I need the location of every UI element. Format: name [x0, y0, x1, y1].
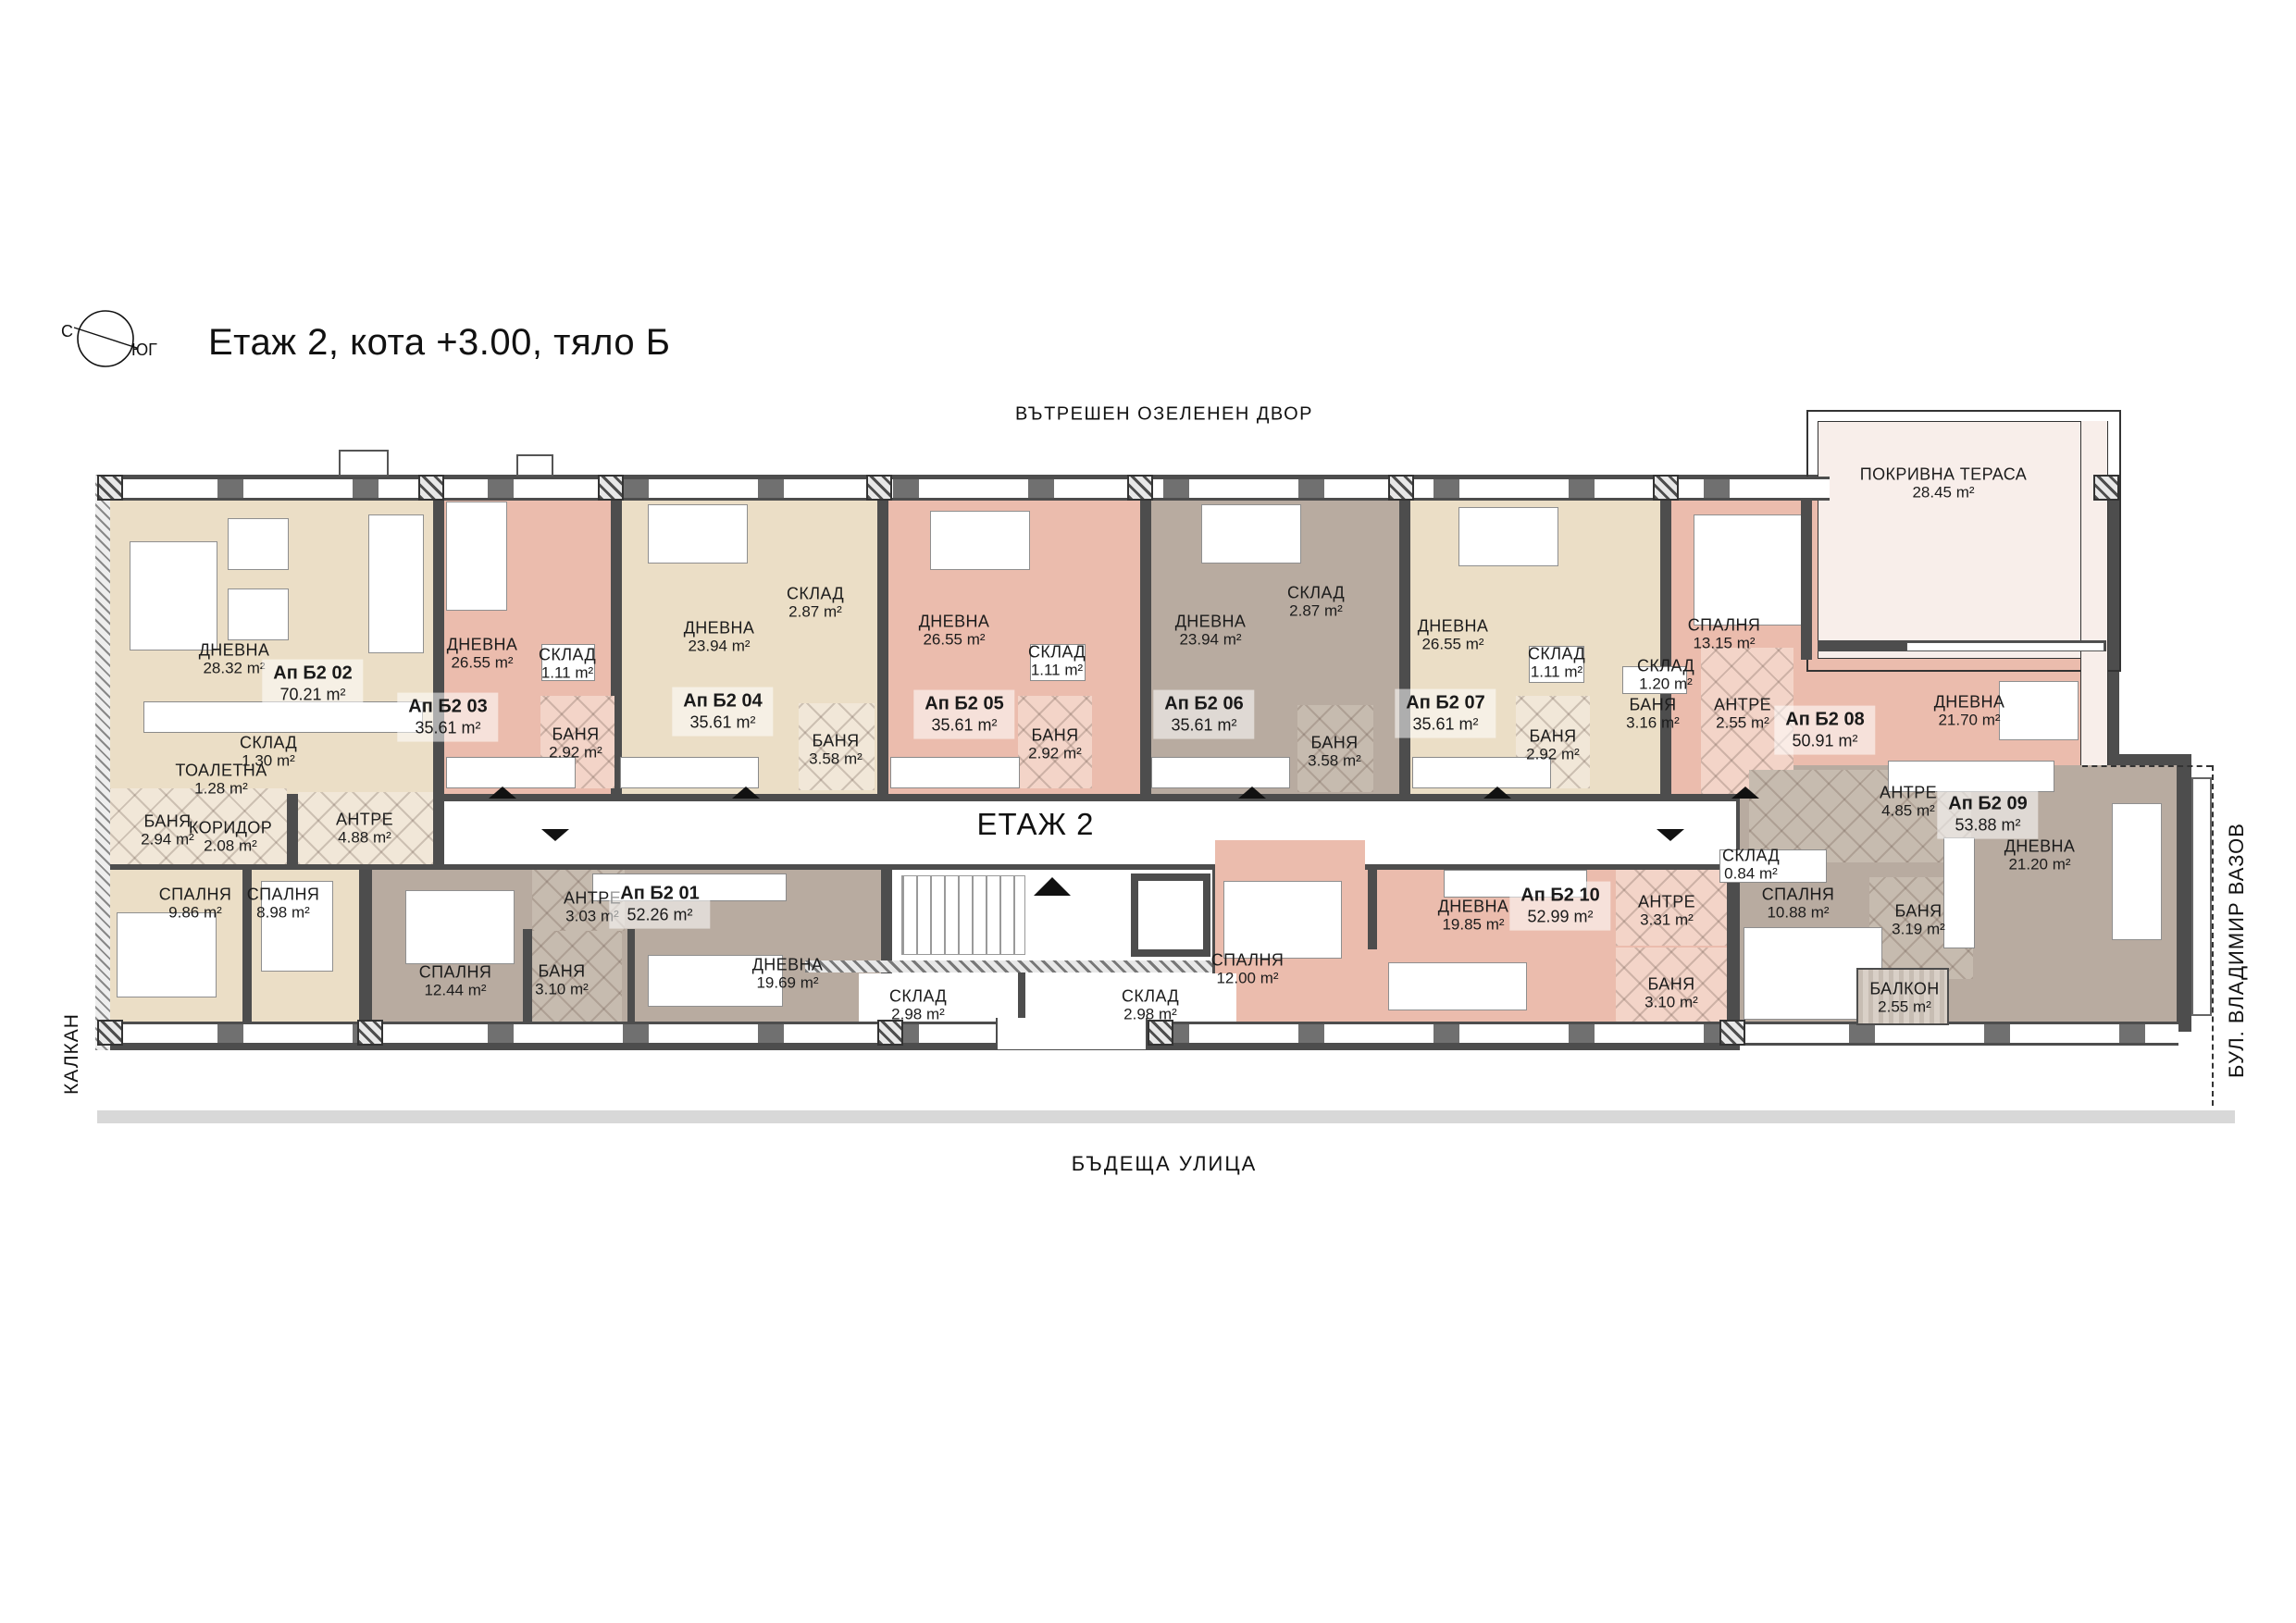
- room-area: 3.19 m²: [1892, 921, 1945, 938]
- armchair: [228, 588, 289, 640]
- room-label: СПАЛНЯ12.00 m²: [1211, 950, 1285, 986]
- room-name: ДНЕВНА: [684, 618, 755, 637]
- stair-landing-hatch: [805, 960, 1212, 973]
- room-name: СКЛАД: [787, 584, 844, 602]
- apartment-id: Ап Б2 09: [1948, 794, 2027, 816]
- wall-pier: [1653, 475, 1679, 501]
- room-area: 2.08 m²: [189, 837, 272, 855]
- apartment-area: 35.61 m²: [1406, 714, 1484, 734]
- room-label: АНТРЕ4.85 m²: [1880, 783, 1937, 819]
- kitchen-counter: [890, 757, 1020, 788]
- wall-pier: [1127, 475, 1153, 501]
- room-label: ТОАЛЕТНА1.28 m²: [175, 761, 267, 797]
- room-label: БАНЯ2.92 m²: [1028, 725, 1082, 762]
- sofa: [1388, 962, 1527, 1010]
- apartment-badge: Ап Б2 0535.61 m²: [913, 690, 1014, 739]
- courtyard-label: ВЪТРЕШЕН ОЗЕЛЕНЕН ДВОР: [1015, 404, 1313, 426]
- room-area: 12.44 m²: [419, 982, 492, 999]
- room-area: 9.86 m²: [159, 904, 232, 922]
- room-label: ДНЕВНА19.69 m²: [752, 955, 824, 991]
- stair-treads: [901, 875, 1025, 955]
- apartment-area: 70.21 m²: [273, 685, 352, 704]
- property-line-dashed-top: [2082, 765, 2212, 767]
- room-name: АНТРЕ: [1638, 892, 1695, 911]
- room-area: 13.15 m²: [1688, 635, 1761, 652]
- roof-terrace: [1818, 421, 2108, 659]
- room-name: БАНЯ: [809, 731, 863, 750]
- room-area: 2.92 m²: [1526, 746, 1580, 763]
- entry-arrow: [489, 787, 516, 799]
- wall-pier: [866, 475, 892, 501]
- corridor-label: ЕТАЖ 2: [976, 807, 1094, 842]
- apartment-area: 35.61 m²: [925, 715, 1003, 735]
- room-label: СКЛАД1.11 m²: [1528, 644, 1585, 680]
- wall-pier: [2093, 475, 2119, 501]
- room-label: СПАЛНЯ13.15 m²: [1688, 615, 1761, 651]
- room-area: 3.58 m²: [1308, 752, 1361, 770]
- room-name: ДНЕВНА: [447, 635, 518, 653]
- room-area: 2.98 m²: [889, 1006, 947, 1023]
- room-area: 23.94 m²: [1175, 631, 1247, 649]
- terrace-south-window: [1906, 642, 2104, 651]
- apartment-id: Ап Б2 04: [683, 691, 762, 713]
- entry-arrow: [541, 829, 569, 841]
- room-label: СПАЛНЯ8.98 m²: [247, 885, 320, 921]
- room-area: 3.58 m²: [809, 750, 863, 768]
- apartment-id: Ап Б2 10: [1520, 886, 1599, 908]
- bed: [405, 890, 515, 964]
- wall-pier: [1388, 475, 1414, 501]
- room-name: АНТРЕ: [336, 810, 393, 828]
- apartment-badge: Ап Б2 0850.91 m²: [1774, 706, 1875, 755]
- apartment-id: Ап Б2 07: [1406, 693, 1484, 715]
- facade-box: [516, 454, 553, 477]
- room-name: БАНЯ: [1028, 725, 1082, 744]
- east-bay-window: [2191, 777, 2212, 1016]
- room-label: БАНЯ3.58 m²: [1308, 733, 1361, 769]
- room-area: 21.20 m²: [2004, 856, 2076, 873]
- room-area: 26.55 m²: [447, 654, 518, 672]
- room-area: 1.11 m²: [539, 664, 596, 682]
- partition: [1368, 870, 1377, 949]
- table: [1999, 681, 2079, 740]
- room-name: ДНЕВНА: [1934, 692, 2005, 711]
- room-label: СКЛАД1.11 m²: [1028, 642, 1086, 678]
- wall-pier: [1148, 1020, 1173, 1046]
- street-right-label: БУЛ. ВЛАДИМИР ВАЗОВ: [2225, 823, 2249, 1078]
- room-area: 1.11 m²: [1028, 662, 1086, 679]
- room-name: СКЛАД: [1722, 846, 1780, 864]
- room-label: БАНЯ3.16 m²: [1626, 695, 1680, 731]
- south-window-band-east: [1740, 1022, 2178, 1046]
- room-area: 0.84 m²: [1722, 865, 1780, 883]
- elevator: [1131, 873, 1210, 957]
- room-label: СКЛАД2.87 m²: [1287, 583, 1345, 619]
- room-name: СПАЛНЯ: [1762, 885, 1835, 903]
- apartment-area: 52.99 m²: [1520, 907, 1599, 926]
- entry-arrow: [1657, 829, 1684, 841]
- apartment-badge: Ап Б2 0735.61 m²: [1395, 689, 1496, 738]
- floor-plan-canvas: С ЮГ Етаж 2, кота +3.00, тяло Б ВЪТРЕШЕН…: [0, 0, 2296, 1623]
- room-label: ДНЕВНА21.70 m²: [1934, 692, 2005, 728]
- room-name: СКЛАД: [889, 986, 947, 1005]
- room-area: 3.16 m²: [1626, 714, 1680, 732]
- room-name: БАНЯ: [1892, 901, 1945, 920]
- room-label: ДНЕВНА26.55 m²: [447, 635, 518, 671]
- apartment-id: Ап Б2 02: [273, 663, 352, 686]
- bed: [1223, 881, 1342, 959]
- partition: [359, 870, 372, 1025]
- apartment-badge: Ап Б2 0270.21 m²: [262, 660, 363, 709]
- apartment-badge: Ап Б2 0635.61 m²: [1153, 690, 1254, 739]
- room-name: БАНЯ: [549, 725, 602, 743]
- north-window-band: [108, 477, 1830, 501]
- room-label: АНТРЕ4.88 m²: [336, 810, 393, 846]
- room-label: КОРИДОР2.08 m²: [189, 818, 272, 854]
- dining-table: [130, 541, 217, 650]
- room-name: ДНЕВНА: [1175, 612, 1247, 630]
- room-name: СКЛАД: [1528, 644, 1585, 663]
- room-name: ДНЕВНА: [1418, 616, 1489, 635]
- room-area: 4.85 m²: [1880, 802, 1937, 820]
- room-area: 26.55 m²: [919, 631, 990, 649]
- apartment-id: Ап Б2 01: [620, 884, 699, 906]
- bed: [1694, 514, 1803, 626]
- room-label: БАНЯ3.19 m²: [1892, 901, 1945, 937]
- room-area: 4.88 m²: [336, 829, 393, 847]
- room-area: 8.98 m²: [247, 904, 320, 922]
- room-label: СКЛАД1.11 m²: [539, 645, 596, 681]
- room-name: БАНЯ: [1308, 733, 1361, 751]
- room-label: АНТРЕ3.31 m²: [1638, 892, 1695, 928]
- room-area: 28.32 m²: [199, 660, 270, 677]
- room-label: СПАЛНЯ12.44 m²: [419, 962, 492, 998]
- room-name: ДНЕВНА: [919, 612, 990, 630]
- room-label: СКЛАД0.84 m²: [1722, 846, 1780, 882]
- facade-box: [339, 450, 389, 477]
- kitchen-counter: [620, 757, 759, 788]
- room-label: ДНЕВНА26.55 m²: [919, 612, 990, 648]
- kitchen-counter: [1943, 837, 1975, 948]
- apartment-area: 52.26 m²: [620, 905, 699, 924]
- room-area: 2.92 m²: [549, 744, 602, 762]
- apartment-badge: Ап Б2 0953.88 m²: [1937, 790, 2038, 839]
- room-name: БАНЯ: [1644, 974, 1698, 993]
- partition: [627, 929, 635, 1023]
- room-area: 2.55 m²: [1714, 714, 1771, 732]
- entry-arrow: [1483, 787, 1511, 799]
- room-label: БАНЯ2.92 m²: [549, 725, 602, 761]
- room-area: 10.88 m²: [1762, 904, 1835, 922]
- room-area: 1.11 m²: [1528, 663, 1585, 681]
- roof-terrace-strip: [2080, 421, 2108, 765]
- room-name: ПОКРИВНА ТЕРАСА: [1860, 465, 2027, 483]
- room-name: КОРИДОР: [189, 818, 272, 836]
- sofa: [368, 514, 424, 653]
- page-title: Етаж 2, кота +3.00, тяло Б: [208, 322, 671, 364]
- room-name: СКЛАД: [1287, 583, 1345, 601]
- apartment-area: 50.91 m²: [1785, 731, 1864, 750]
- room-label: АНТРЕ2.55 m²: [1714, 695, 1771, 731]
- room-name: СПАЛНЯ: [1688, 615, 1761, 634]
- room-area: 1.20 m²: [1637, 675, 1694, 693]
- room-label: СПАЛНЯ10.88 m²: [1762, 885, 1835, 921]
- room-name: СКЛАД: [539, 645, 596, 663]
- room-name: ТОАЛЕТНА: [175, 761, 267, 779]
- room-area: 28.45 m²: [1860, 484, 2027, 502]
- room-area: 3.10 m²: [535, 981, 589, 998]
- room-label: БАНЯ3.10 m²: [1644, 974, 1698, 1010]
- apartment-badge: Ап Б2 0335.61 m²: [397, 693, 498, 742]
- apartment-id: Ап Б2 08: [1785, 710, 1864, 732]
- room-name: СПАЛНЯ: [159, 885, 232, 903]
- apartment-area: 35.61 m²: [408, 718, 487, 737]
- apartment-id: Ап Б2 05: [925, 694, 1003, 716]
- room-area: 2.87 m²: [1287, 602, 1345, 620]
- entry-arrow: [1238, 787, 1266, 799]
- armchair: [228, 518, 289, 570]
- room-name: СКЛАД: [1637, 656, 1694, 675]
- kitchen-counter: [446, 757, 576, 788]
- room-label: БАНЯ2.94 m²: [141, 811, 194, 848]
- room-area: 2.55 m²: [1869, 998, 1939, 1016]
- apartment-badge: Ап Б2 0435.61 m²: [672, 688, 773, 737]
- room-area: 2.98 m²: [1122, 1006, 1179, 1023]
- room-label: ДНЕВНА28.32 m²: [199, 640, 270, 676]
- room-area: 3.10 m²: [1644, 994, 1698, 1011]
- room-name: СКЛАД: [1122, 986, 1179, 1005]
- room-name: ДНЕВНА: [1438, 897, 1509, 915]
- room-label: ПОКРИВНА ТЕРАСА28.45 m²: [1860, 465, 2027, 501]
- room-area: 23.94 m²: [684, 638, 755, 655]
- room-name: АНТРЕ: [1880, 783, 1937, 801]
- room-label: БАНЯ3.58 m²: [809, 731, 863, 767]
- party-wall-label: КАЛКАН: [61, 1013, 83, 1095]
- wall-pier: [357, 1020, 383, 1046]
- bed: [446, 502, 507, 611]
- apartment-badge: Ап Б2 1052.99 m²: [1509, 882, 1610, 931]
- room-name: БАНЯ: [141, 811, 194, 830]
- room-area: 2.94 m²: [141, 831, 194, 849]
- room-name: АНТРЕ: [1714, 695, 1771, 713]
- apartment-id: Ап Б2 03: [408, 697, 487, 719]
- room-name: СКЛАД: [240, 733, 297, 751]
- property-line-dashed: [2212, 765, 2214, 1106]
- room-name: ДНЕВНА: [752, 955, 824, 973]
- room-label: БАЛКОН2.55 m²: [1869, 979, 1939, 1015]
- room-label: СПАЛНЯ9.86 m²: [159, 885, 232, 921]
- room-name: ДНЕВНА: [2004, 836, 2076, 855]
- room-label: СКЛАД2.98 m²: [1122, 986, 1179, 1022]
- b210-bedroom-ext: [1215, 840, 1365, 872]
- room-name: СПАЛНЯ: [1211, 950, 1285, 969]
- room-name: ДНЕВНА: [199, 640, 270, 659]
- room-label: БАНЯ3.10 m²: [535, 961, 589, 997]
- sofa: [648, 504, 748, 564]
- room-area: 3.31 m²: [1638, 911, 1695, 929]
- room-name: БАНЯ: [1526, 726, 1580, 745]
- sofa: [2112, 803, 2162, 940]
- entry-arrow: [1731, 787, 1759, 799]
- wall-pier: [418, 475, 444, 501]
- room-area: 2.87 m²: [787, 603, 844, 621]
- bed: [117, 912, 217, 997]
- room-name: БАНЯ: [1626, 695, 1680, 713]
- room-area: 19.85 m²: [1438, 916, 1509, 934]
- compass-north-label: С: [61, 322, 73, 341]
- party-wall-hatch: [95, 475, 110, 1050]
- room-name: СПАЛНЯ: [247, 885, 320, 903]
- storage-divider-wall: [1018, 968, 1025, 1023]
- kitchen-counter: [1151, 757, 1290, 788]
- room-label: БАНЯ2.92 m²: [1526, 726, 1580, 762]
- room-label: СКЛАД1.20 m²: [1637, 656, 1694, 692]
- sofa: [1201, 504, 1301, 564]
- sofa: [930, 511, 1030, 570]
- room-area: 26.55 m²: [1418, 636, 1489, 653]
- room-label: ДНЕВНА19.85 m²: [1438, 897, 1509, 933]
- apartment-id: Ап Б2 06: [1164, 694, 1243, 716]
- apartment-area: 35.61 m²: [683, 712, 762, 732]
- entry-arrow: [732, 787, 760, 799]
- room-label: СКЛАД2.87 m²: [787, 584, 844, 620]
- room-name: БАЛКОН: [1869, 979, 1939, 997]
- stair-direction-arrow: [1034, 877, 1071, 896]
- apartment-area: 53.88 m²: [1948, 815, 2027, 835]
- street-band: [97, 1110, 2235, 1123]
- sofa: [1458, 507, 1558, 566]
- south-window-band: [108, 1022, 1733, 1046]
- apartment-area: 35.61 m²: [1164, 715, 1243, 735]
- wall-pier: [97, 1020, 123, 1046]
- room-area: 19.69 m²: [752, 974, 824, 992]
- partition: [523, 929, 532, 1023]
- room-name: СПАЛНЯ: [419, 962, 492, 981]
- apartment-badge: Ап Б2 0152.26 m²: [609, 880, 710, 929]
- wall-pier: [877, 1020, 903, 1046]
- room-area: 12.00 m²: [1211, 970, 1285, 987]
- room-name: СКЛАД: [1028, 642, 1086, 661]
- room-area: 21.70 m²: [1934, 712, 2005, 729]
- room-label: СКЛАД2.98 m²: [889, 986, 947, 1022]
- wall-pier: [1719, 1020, 1745, 1046]
- room-label: ДНЕВНА26.55 m²: [1418, 616, 1489, 652]
- compass-south-label: ЮГ: [131, 341, 157, 360]
- wall-pier: [598, 475, 624, 501]
- street-bottom-label: БЪДЕЩА УЛИЦА: [1072, 1152, 1258, 1176]
- room-area: 1.28 m²: [175, 780, 267, 798]
- room-label: ДНЕВНА23.94 m²: [684, 618, 755, 654]
- room-label: ДНЕВНА21.20 m²: [2004, 836, 2076, 873]
- room-label: ДНЕВНА23.94 m²: [1175, 612, 1247, 648]
- wall-pier: [97, 475, 123, 501]
- partition: [1801, 488, 1812, 660]
- room-name: БАНЯ: [535, 961, 589, 980]
- room-area: 2.92 m²: [1028, 745, 1082, 762]
